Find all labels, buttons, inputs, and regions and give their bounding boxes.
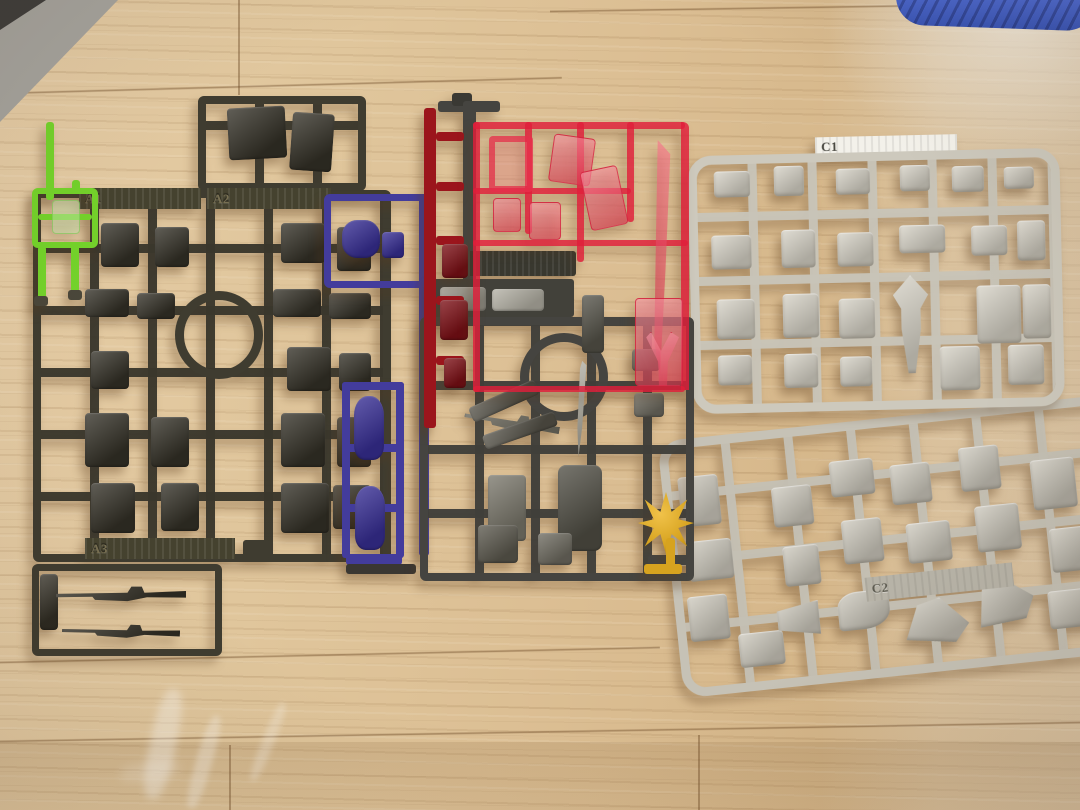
molded-part	[771, 484, 815, 528]
molded-part	[281, 413, 325, 467]
molded-part	[538, 533, 572, 565]
molded-part	[714, 171, 751, 198]
sprue-bar	[342, 382, 350, 558]
runner-green	[30, 118, 108, 308]
molded-part	[905, 520, 953, 564]
molded-part	[281, 223, 325, 263]
molded-part	[1017, 220, 1046, 261]
molded-part	[478, 525, 518, 563]
molded-part	[952, 166, 985, 193]
sprue-bar	[424, 108, 436, 428]
molded-part	[687, 593, 731, 642]
molded-part	[889, 462, 933, 506]
sprue-bar	[38, 246, 46, 300]
molded-part	[940, 346, 981, 391]
molded-part	[781, 229, 816, 268]
clear-part	[489, 136, 533, 192]
molded-part	[40, 574, 58, 630]
foot-part	[355, 486, 385, 550]
clear-part	[52, 200, 80, 234]
molded-part	[155, 227, 189, 267]
molded-part	[837, 232, 874, 267]
molded-part	[784, 353, 819, 388]
molded-part	[899, 224, 946, 253]
sprue-bar	[627, 122, 634, 222]
label-tab-a2: A2	[207, 188, 331, 209]
gate-connector	[346, 564, 416, 574]
plank-seam	[229, 745, 231, 810]
molded-part	[718, 355, 753, 386]
runner-red-clear	[463, 110, 703, 425]
sprue-bar	[436, 182, 464, 191]
photo-scene: C2 C1 A1 A2	[0, 0, 1080, 810]
runner-label: C2	[871, 579, 889, 597]
molded-part	[774, 166, 805, 197]
molded-part	[273, 289, 321, 317]
sprue-bar	[243, 540, 271, 558]
molded-part	[717, 299, 756, 340]
molded-part	[1029, 456, 1078, 510]
molded-part	[91, 483, 135, 533]
sprue-bar	[342, 382, 404, 390]
molded-part	[971, 225, 1008, 256]
molded-part	[836, 168, 871, 195]
molded-part	[958, 444, 1002, 492]
molded-part	[1048, 525, 1080, 573]
sprue-bar	[71, 244, 79, 294]
molded-part	[1022, 284, 1051, 339]
ring-gate	[175, 291, 263, 379]
runner-label: A2	[213, 191, 230, 207]
sprue-bar	[644, 564, 682, 574]
molded-part	[1004, 166, 1034, 189]
gold-part-group	[636, 490, 708, 580]
molded-part	[782, 544, 822, 588]
molded-part	[289, 112, 335, 173]
clear-part	[529, 202, 561, 240]
gate-connector	[34, 296, 48, 306]
molded-part	[900, 165, 931, 192]
sprue-bar	[396, 382, 404, 558]
sprue-bar	[436, 132, 464, 141]
molded-part	[711, 235, 752, 270]
molded-part	[382, 232, 404, 258]
gate-connector	[68, 290, 82, 300]
molded-part	[161, 483, 199, 531]
molded-part	[738, 630, 786, 669]
molded-part	[85, 413, 129, 467]
molded-part	[974, 502, 1023, 552]
plank-seam	[238, 0, 240, 95]
clear-vane-part	[579, 165, 629, 232]
runner-c2: C2	[655, 390, 1080, 701]
clear-part	[493, 198, 521, 232]
sprue-bar	[473, 240, 688, 246]
runner-c1: C1	[685, 132, 1067, 416]
molded-part	[137, 293, 175, 319]
molded-part	[828, 457, 876, 497]
sprue-bar	[473, 386, 685, 392]
foot-part	[354, 396, 384, 460]
joint-part	[342, 220, 380, 258]
molded-part	[91, 351, 129, 389]
sprue-bar	[473, 122, 480, 392]
runner-a3-frame	[28, 538, 238, 660]
sprue-frame	[32, 564, 222, 656]
molded-part	[1008, 344, 1045, 385]
molded-part	[840, 356, 873, 387]
molded-part	[839, 298, 876, 339]
plank-seam	[698, 735, 700, 810]
molded-part	[840, 517, 884, 565]
armor-part	[976, 285, 1021, 344]
molded-part	[782, 293, 819, 338]
molded-part	[1047, 587, 1080, 630]
molded-part	[227, 106, 288, 161]
molded-part	[151, 417, 189, 467]
